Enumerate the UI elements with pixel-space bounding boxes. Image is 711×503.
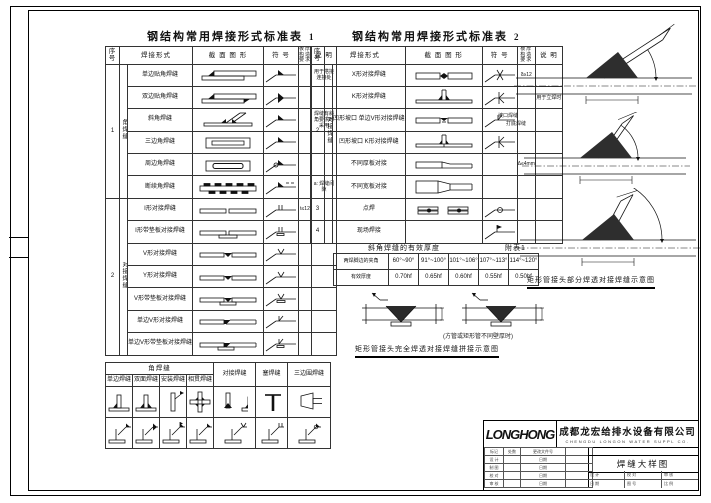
thickness-value: 0.55hf bbox=[479, 270, 509, 286]
joint-figure-c5 bbox=[222, 389, 248, 415]
weld-symbol bbox=[482, 198, 517, 220]
table-row: V形对接焊缝 bbox=[106, 243, 337, 265]
revision-cell: 审 核 bbox=[485, 480, 504, 488]
joint-symbol bbox=[214, 418, 256, 449]
company-logo: LONGHONG bbox=[484, 421, 557, 447]
table2-title: 钢结构常用焊接形式标准表2 bbox=[352, 28, 519, 44]
joint-symbol bbox=[288, 418, 331, 449]
corner-subcol-header: 相贯焊缝 bbox=[187, 375, 214, 387]
angle-value: 101°~106° bbox=[449, 254, 479, 270]
section-figure bbox=[193, 198, 264, 220]
weld-symbol bbox=[264, 266, 299, 288]
section-figure-width bbox=[412, 177, 476, 197]
weld-symbol bbox=[482, 176, 517, 198]
weld-symbol bbox=[264, 131, 299, 153]
weld-form-label: 双边贴角焊缝 bbox=[128, 86, 193, 108]
corner-col-header: 对接焊缝 bbox=[214, 363, 256, 387]
note bbox=[312, 310, 337, 332]
section-figure-buttX bbox=[412, 65, 476, 85]
note bbox=[312, 288, 337, 310]
weld-symbol bbox=[264, 176, 299, 198]
section-figure bbox=[193, 176, 264, 198]
revision-cell bbox=[504, 456, 521, 464]
thickness-value: 0.60hf bbox=[449, 270, 479, 286]
corner-subcol-header: 单边焊缝 bbox=[106, 375, 133, 387]
weld-symbol-filD bbox=[264, 178, 298, 196]
table1-title-no: 1 bbox=[309, 32, 314, 42]
pipe-joint-diagram-2 bbox=[520, 112, 692, 184]
weld-symbol bbox=[264, 64, 299, 86]
signature-cells: 设 计日 期校 对图 号审 核比 例 bbox=[588, 471, 698, 488]
splice-note: (方管或矩形管不同壁厚时) bbox=[443, 331, 513, 340]
signature-label: 设 计 bbox=[588, 471, 624, 480]
joint-symbol bbox=[133, 418, 160, 449]
section-figure bbox=[405, 176, 482, 198]
section-figure-interm bbox=[196, 177, 260, 197]
centering-mark bbox=[9, 257, 29, 258]
weld-symbol-symI bbox=[264, 201, 298, 219]
appendix-table: 两焊脚边的夹角60°~90°91°~100°101°~106°107°~113°… bbox=[333, 253, 539, 286]
section-figure-buttI bbox=[196, 200, 260, 220]
company-name-en: CHENGDU LONGON WATER SUPPL CO. bbox=[565, 439, 689, 444]
weld-symbol-symK bbox=[483, 133, 517, 151]
group-no: 4 bbox=[311, 221, 325, 243]
section-figure bbox=[193, 310, 264, 332]
revision-grid: 标记处数更改文件号设 计日期制 图日期校 对日期审 核日期 bbox=[484, 447, 589, 488]
appendix-row-values: 有效厚度0.70hf0.65hf0.60hf0.55hf0.50hf bbox=[334, 270, 539, 286]
weld-symbol-fil bbox=[264, 111, 298, 129]
weld-form-label: 斜角焊缝 bbox=[128, 109, 193, 131]
group-form bbox=[325, 221, 333, 243]
weld-symbol-fil bbox=[264, 66, 298, 84]
section-figure bbox=[405, 109, 482, 131]
section-figure-bevSB bbox=[196, 334, 260, 354]
section-figure bbox=[405, 86, 482, 108]
thickness-value: 0.65hf bbox=[419, 270, 449, 286]
section-figure-spot bbox=[412, 200, 476, 220]
group-no: 3 bbox=[311, 198, 325, 220]
title-block: LONGHONG 成都龙宏给排水设备有限公司 CHENGDU LONGON WA… bbox=[483, 420, 699, 491]
joint-symbol-s5 bbox=[222, 420, 248, 446]
root-weld-label: 打底焊缝 bbox=[506, 120, 526, 127]
joint-figure-c2 bbox=[133, 389, 159, 415]
joint-figure-c1 bbox=[106, 389, 132, 415]
section-figure-perim bbox=[196, 155, 260, 175]
signature-column: 审 核比 例 bbox=[662, 471, 698, 488]
table-row: 三边角焊缝 bbox=[106, 131, 337, 153]
corner-subcol-header: 安装焊缝 bbox=[160, 375, 187, 387]
section-figure bbox=[405, 131, 482, 153]
thickness-req bbox=[299, 243, 312, 265]
weld-symbol bbox=[264, 154, 299, 176]
section-figure bbox=[193, 154, 264, 176]
joint-figure-c3 bbox=[160, 389, 186, 415]
col-form: 焊接形式 bbox=[325, 47, 406, 65]
weld-symbol-symBevB bbox=[264, 335, 298, 353]
corner-table-container: 角焊缝对接焊缝塞焊缝三边围焊缝单边焊缝双面焊缝安装焊缝相贯焊缝 bbox=[105, 362, 331, 449]
groove-weld-label: 坡口焊缝 bbox=[498, 112, 518, 119]
weld-form-label: 点焊 bbox=[333, 198, 406, 220]
joint-figure-c6 bbox=[259, 389, 285, 415]
section-figure-rect3 bbox=[196, 132, 260, 152]
pipe-joint-diagram-1 bbox=[512, 16, 698, 112]
pipe-joint-diagram-3 bbox=[516, 188, 702, 272]
signature-label: 校 对 bbox=[625, 471, 661, 480]
weld-symbol-fil2 bbox=[264, 89, 298, 107]
weld-symbol-filP bbox=[264, 156, 298, 174]
section-figure-blank bbox=[412, 222, 476, 242]
weld-symbol bbox=[264, 198, 299, 220]
joint-figure bbox=[106, 387, 133, 418]
weld-form-label: 断续角焊缝 bbox=[128, 176, 193, 198]
company-block: 成都龙宏给排水设备有限公司 CHENGDU LONGON WATER SUPPL… bbox=[557, 421, 698, 447]
table-row: 2对接焊缝I形对接焊缝t≤12 bbox=[106, 198, 337, 220]
splice-caption: 矩形管接头完全焊透对接焊缝拼接示意图 bbox=[355, 344, 499, 358]
table1-title: 钢结构常用焊接形式标准表1 bbox=[147, 28, 314, 44]
revision-table: 标记处数更改文件号设 计日期制 图日期校 对日期审 核日期 bbox=[484, 447, 593, 488]
weld-symbol-symNone bbox=[483, 156, 517, 174]
table-row: V形带垫板对接焊缝 bbox=[106, 288, 337, 310]
joint-symbol-s1 bbox=[106, 420, 132, 446]
revision-row: 标记处数更改文件号 bbox=[485, 448, 593, 456]
angle-value: 60°~90° bbox=[389, 254, 419, 270]
table-row: 断续角焊缝a: 焊缝间隙 bbox=[106, 176, 337, 198]
weld-form-label: I形带垫板对接焊缝 bbox=[128, 221, 193, 243]
appendix-row-angles: 两焊脚边的夹角60°~90°91°~100°101°~106°107°~113°… bbox=[334, 254, 539, 270]
section-figure-buttVB bbox=[196, 289, 260, 309]
weld-symbol bbox=[482, 154, 517, 176]
joint-figure bbox=[256, 387, 288, 418]
weld-form-label: 现场焊接 bbox=[333, 221, 406, 243]
group-no: 1 bbox=[106, 64, 120, 198]
weld-form-label: 三边角焊缝 bbox=[128, 131, 193, 153]
corner-header-row: 角焊缝对接焊缝塞焊缝三边围焊缝 bbox=[106, 363, 331, 375]
corner-sym-row bbox=[106, 418, 331, 449]
weld-form-label: 周边角焊缝 bbox=[128, 154, 193, 176]
weld-symbol-symIb bbox=[264, 223, 298, 241]
corner-col-header: 三边围焊缝 bbox=[288, 363, 331, 387]
fillet-group-header: 角焊缝 bbox=[106, 363, 214, 375]
group-form: 对接焊缝 bbox=[325, 64, 333, 198]
section-figure-lap2 bbox=[196, 88, 260, 108]
section-figure bbox=[193, 109, 264, 131]
table1-title-text: 钢结构常用焊接形式标准表 bbox=[147, 31, 303, 43]
pipe-joint-figure-3 bbox=[516, 188, 702, 272]
section-figure bbox=[193, 243, 264, 265]
weld-form-label: 不同宽板对接 bbox=[333, 176, 406, 198]
revision-row: 设 计日期 bbox=[485, 456, 593, 464]
group-no: 2 bbox=[106, 198, 120, 355]
joint-symbol bbox=[106, 418, 133, 449]
weld-symbol-symField bbox=[483, 223, 517, 241]
signature-label: 比 例 bbox=[662, 480, 698, 488]
weld-form-label: K形对接焊缝 bbox=[333, 86, 406, 108]
joint-figure bbox=[288, 387, 331, 418]
fillet-weld-summary-table: 角焊缝对接焊缝塞焊缝三边围焊缝单边焊缝双面焊缝安装焊缝相贯焊缝 bbox=[105, 362, 331, 449]
weld-form-label: 凹形坡口 K形对接焊缝 bbox=[333, 131, 406, 153]
weld-symbol bbox=[264, 333, 299, 355]
section-figure-bevS bbox=[196, 311, 260, 331]
col-no: 序 号 bbox=[106, 47, 120, 65]
col-fig: 截 面 图 形 bbox=[193, 47, 264, 65]
col-sym: 符 号 bbox=[264, 47, 299, 65]
weld-form-label: V形对接焊缝 bbox=[128, 243, 193, 265]
title-block-top: LONGHONG 成都龙宏给排水设备有限公司 CHENGDU LONGON WA… bbox=[484, 421, 698, 448]
weld-form-label: V形带垫板对接焊缝 bbox=[128, 288, 193, 310]
revision-cell bbox=[504, 472, 521, 480]
appendix-container: 两焊脚边的夹角60°~90°91°~100°101°~106°107°~113°… bbox=[333, 253, 539, 286]
header-row: 序 号焊接形式截 面 图 形符 号板厚构造要求说 明 bbox=[106, 47, 337, 65]
section-figure-buttIB bbox=[196, 222, 260, 242]
weld-form-label: 单边V形带垫板对接焊缝 bbox=[128, 333, 193, 355]
appendix-title: 斜角焊缝的有效厚度 bbox=[368, 243, 440, 253]
weld-table-1: 序 号焊接形式截 面 图 形符 号板厚构造要求说 明1角焊缝单边贴角焊缝用于搭接… bbox=[105, 46, 337, 356]
joint-symbol bbox=[256, 418, 288, 449]
weld-symbol bbox=[264, 109, 299, 131]
table-row: 双边贴角焊缝 bbox=[106, 86, 337, 108]
thickness-req bbox=[299, 266, 312, 288]
joint-figure bbox=[214, 387, 256, 418]
section-figure bbox=[405, 221, 482, 243]
weld-symbol bbox=[482, 221, 517, 243]
joint-symbol bbox=[160, 418, 187, 449]
col-no: 序 号 bbox=[311, 47, 325, 65]
signature-label: 图 号 bbox=[625, 480, 661, 488]
section-figure bbox=[193, 86, 264, 108]
revision-row: 制 图日期 bbox=[485, 464, 593, 472]
weld-form-label: 不同厚板对接 bbox=[333, 154, 406, 176]
table2-title-text: 钢结构常用焊接形式标准表 bbox=[352, 31, 508, 43]
joint-symbol-s4 bbox=[187, 420, 213, 446]
group-no: 2 bbox=[311, 64, 325, 198]
section-figure-buttY bbox=[196, 267, 260, 287]
right-caption: 矩形管接头部分焊透对接焊缝示意图 bbox=[527, 275, 655, 289]
thickness-value: 0.70hf bbox=[389, 270, 419, 286]
section-figure-bluntV bbox=[412, 110, 476, 130]
weld-symbol bbox=[264, 310, 299, 332]
joint-symbol-s2 bbox=[133, 420, 159, 446]
revision-cell: 设 计 bbox=[485, 456, 504, 464]
weld-form-label: 单边贴角焊缝 bbox=[128, 64, 193, 86]
joint-figure bbox=[133, 387, 160, 418]
weld-symbol-symV bbox=[264, 268, 298, 286]
section-figure-bluntK bbox=[412, 132, 476, 152]
revision-cell bbox=[504, 464, 521, 472]
angle-value: 91°~100° bbox=[419, 254, 449, 270]
weld-symbol bbox=[264, 288, 299, 310]
section-figure-buttV bbox=[196, 244, 260, 264]
splice-figure bbox=[358, 290, 446, 342]
table-row: I形带垫板对接焊缝 bbox=[106, 221, 337, 243]
section-figure-thick bbox=[412, 155, 476, 175]
pipe-joint-figure-1 bbox=[512, 16, 698, 112]
revision-cell: 日期 bbox=[521, 456, 566, 464]
revision-cell: 标记 bbox=[485, 448, 504, 456]
section-figure-buttK bbox=[412, 88, 476, 108]
corner-fig-row bbox=[106, 387, 331, 418]
signature-column: 校 对图 号 bbox=[625, 471, 662, 488]
revision-cell: 制 图 bbox=[485, 464, 504, 472]
company-name-cn: 成都龙宏给排水设备有限公司 bbox=[559, 424, 696, 438]
weld-symbol-symBev bbox=[264, 312, 298, 330]
section-figure bbox=[193, 288, 264, 310]
table-row: 周边角焊缝 bbox=[106, 154, 337, 176]
appendix-label: 两焊脚边的夹角 bbox=[334, 254, 389, 270]
revision-cell: 处数 bbox=[504, 448, 521, 456]
section-figure bbox=[405, 198, 482, 220]
group-form bbox=[325, 198, 333, 220]
signature-label: 日 期 bbox=[588, 480, 624, 488]
joint-symbol-s7 bbox=[296, 420, 322, 446]
revision-row: 校 对日期 bbox=[485, 472, 593, 480]
joint-symbol-s6 bbox=[259, 420, 285, 446]
joint-figure bbox=[187, 387, 214, 418]
weld-symbol bbox=[264, 221, 299, 243]
table-row: 1角焊缝单边贴角焊缝用于搭接连接处 bbox=[106, 64, 337, 86]
weld-symbol bbox=[264, 243, 299, 265]
table-row: 单边V形带垫板对接焊缝 bbox=[106, 333, 337, 355]
corner-col-header: 塞焊缝 bbox=[256, 363, 288, 387]
angle-value: 107°~113° bbox=[479, 254, 509, 270]
revision-cell: 校 对 bbox=[485, 472, 504, 480]
weld-symbol-fil bbox=[264, 133, 298, 151]
group-form: 角焊缝 bbox=[120, 64, 128, 198]
section-figure-bevel bbox=[196, 110, 260, 130]
section-figure bbox=[193, 266, 264, 288]
joint-symbol-s3 bbox=[160, 420, 186, 446]
revision-cell: 日期 bbox=[521, 472, 566, 480]
weld-form-label: 单边V形对接焊缝 bbox=[128, 310, 193, 332]
thickness-req bbox=[299, 310, 312, 332]
thickness-req bbox=[299, 333, 312, 355]
weld-symbol-symNone bbox=[483, 178, 517, 196]
section-figure bbox=[405, 64, 482, 86]
revision-cell: 日期 bbox=[521, 464, 566, 472]
revision-row: 审 核日期 bbox=[485, 480, 593, 488]
centering-mark bbox=[9, 237, 29, 238]
joint-figure-c4 bbox=[187, 389, 213, 415]
weld-symbol-symVb bbox=[264, 290, 298, 308]
joint-figure-c7 bbox=[296, 389, 322, 415]
section-figure bbox=[193, 131, 264, 153]
revision-cell: 更改文件号 bbox=[521, 448, 566, 456]
weld-symbol-symSpot bbox=[483, 201, 517, 219]
title-block-right: 焊缝大样图 设 计日 期校 对图 号审 核比 例 bbox=[588, 447, 698, 488]
table-row: Y形对接焊缝 bbox=[106, 266, 337, 288]
section-figure bbox=[193, 64, 264, 86]
group-form: 对接焊缝 bbox=[120, 198, 128, 355]
section-figure bbox=[405, 154, 482, 176]
drawing-sheet: 钢结构常用焊接形式标准表1 序 号焊接形式截 面 图 形符 号板厚构造要求说 明… bbox=[0, 0, 711, 503]
weld-form-label: Y形对接焊缝 bbox=[128, 266, 193, 288]
weld-form-label: 凹形坡口 单边V形对接焊缝 bbox=[333, 109, 406, 131]
col-form: 焊接形式 bbox=[120, 47, 193, 65]
revision-cell bbox=[504, 480, 521, 488]
pipe-joint-figure-2 bbox=[520, 112, 692, 184]
revision-cell: 日期 bbox=[521, 480, 566, 488]
table-row: 斜角焊缝焊缝有斜角要求时采用 bbox=[106, 109, 337, 131]
joint-figure bbox=[160, 387, 187, 418]
table1-container: 序 号焊接形式截 面 图 形符 号板厚构造要求说 明1角焊缝单边贴角焊缝用于搭接… bbox=[105, 46, 337, 356]
thickness-req bbox=[299, 288, 312, 310]
weld-form-label: I形对接焊缝 bbox=[128, 198, 193, 220]
corner-subcol-header: 双面焊缝 bbox=[133, 375, 160, 387]
section-figure bbox=[193, 333, 264, 355]
col-fig: 截 面 图 形 bbox=[405, 47, 482, 65]
note bbox=[312, 333, 337, 355]
weld-symbol bbox=[264, 86, 299, 108]
section-figure bbox=[193, 221, 264, 243]
weld-symbol bbox=[482, 131, 517, 153]
signature-column: 设 计日 期 bbox=[588, 471, 625, 488]
signature-label: 审 核 bbox=[662, 471, 698, 480]
appendix-label: 有效厚度 bbox=[334, 270, 389, 286]
splice-diagram-left bbox=[358, 290, 446, 342]
joint-symbol bbox=[187, 418, 214, 449]
weld-form-label: X形对接焊缝 bbox=[333, 64, 406, 86]
table-row: 单边V形对接焊缝 bbox=[106, 310, 337, 332]
section-figure-lap1 bbox=[196, 65, 260, 85]
weld-symbol-symV bbox=[264, 245, 298, 263]
